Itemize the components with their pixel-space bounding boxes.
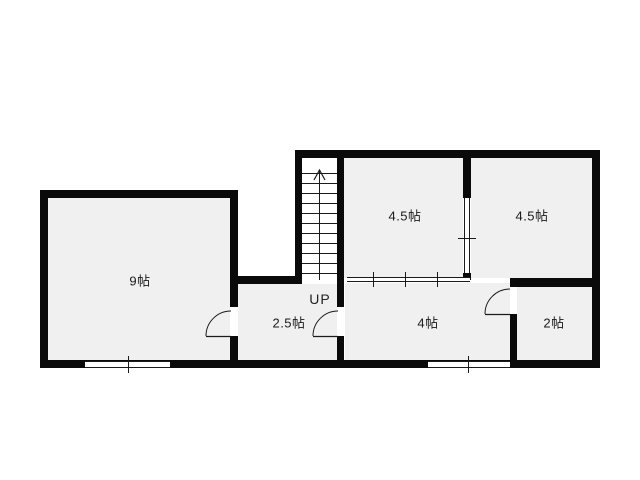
room-2jo-floor xyxy=(517,287,592,360)
room9-top-wall xyxy=(40,190,238,198)
room2-top-wall xyxy=(510,278,592,287)
room-4_5jo-left-floor xyxy=(344,158,463,278)
room9-right-wall-lower xyxy=(230,336,238,360)
room-4_5jo-right-floor xyxy=(471,158,592,278)
notch-wall xyxy=(230,276,302,284)
stairs-right-wall-lower xyxy=(337,336,344,360)
partition-wall-upper xyxy=(463,158,471,198)
room9-right-wall-upper xyxy=(230,198,238,307)
room9-left-wall xyxy=(40,190,48,368)
stairs-left-wall xyxy=(295,150,302,280)
outer-right-wall xyxy=(592,150,600,368)
window-9jo-bottom xyxy=(85,361,170,368)
room-9jo-floor xyxy=(48,198,230,360)
floorplan-drawing xyxy=(0,0,640,480)
stairs-right-wall-upper xyxy=(337,150,344,307)
room-4jo-floor xyxy=(345,283,510,360)
room-2_5jo-floor xyxy=(238,284,337,360)
room2-left-wall-lower xyxy=(510,314,517,360)
floorplan-canvas: 9帖2.5帖4帖2帖4.5帖4.5帖UP xyxy=(0,0,640,480)
